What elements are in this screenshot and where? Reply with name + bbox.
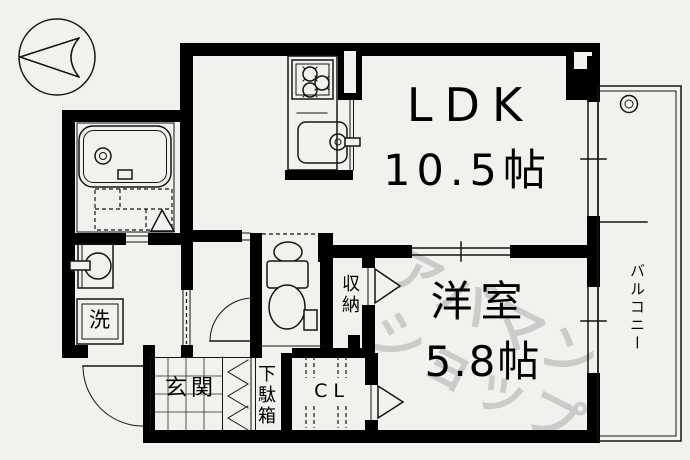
- kitchen-stove: [292, 60, 333, 99]
- windows: [412, 102, 606, 373]
- bathtub: [79, 126, 171, 187]
- storage-door-mark: [375, 269, 400, 303]
- closet-door-mark: [378, 386, 403, 418]
- ldk-size-label: 10.5帖: [355, 150, 580, 193]
- balcony-drain: [621, 96, 638, 113]
- washroom: [70, 244, 190, 346]
- bath-door-opening: [126, 236, 148, 242]
- kitchen-sink: [298, 122, 360, 163]
- compass-icon: [19, 19, 95, 95]
- entrance-door-swing: [83, 366, 143, 426]
- washing-machine-label: 洗: [89, 310, 110, 331]
- toilet: [267, 242, 317, 330]
- closet-label: CL: [303, 382, 361, 401]
- hall-door-swing: [210, 298, 253, 341]
- washroom-sliding-door: [183, 290, 190, 346]
- shoe-cabinet-door-marks: [228, 360, 248, 430]
- entrance-label: 玄関: [152, 378, 230, 400]
- shoe-cabinet-label: 下駄箱: [256, 364, 274, 427]
- washbasin: [70, 244, 113, 288]
- storage-label: 収納: [340, 274, 358, 316]
- floor-plan: アパマン ショップ: [0, 0, 690, 460]
- hall-opening: [242, 233, 250, 240]
- ldk-label: LDK: [398, 82, 543, 128]
- paper-holder: [304, 310, 317, 330]
- balcony-label: バルコニー: [629, 263, 644, 353]
- western-room-window: [588, 287, 598, 373]
- western-room-size-label: 5.8帖: [393, 341, 573, 383]
- western-room-label: 洋室: [413, 281, 548, 323]
- bathroom: [77, 123, 174, 242]
- bath-door-mark: [151, 210, 174, 231]
